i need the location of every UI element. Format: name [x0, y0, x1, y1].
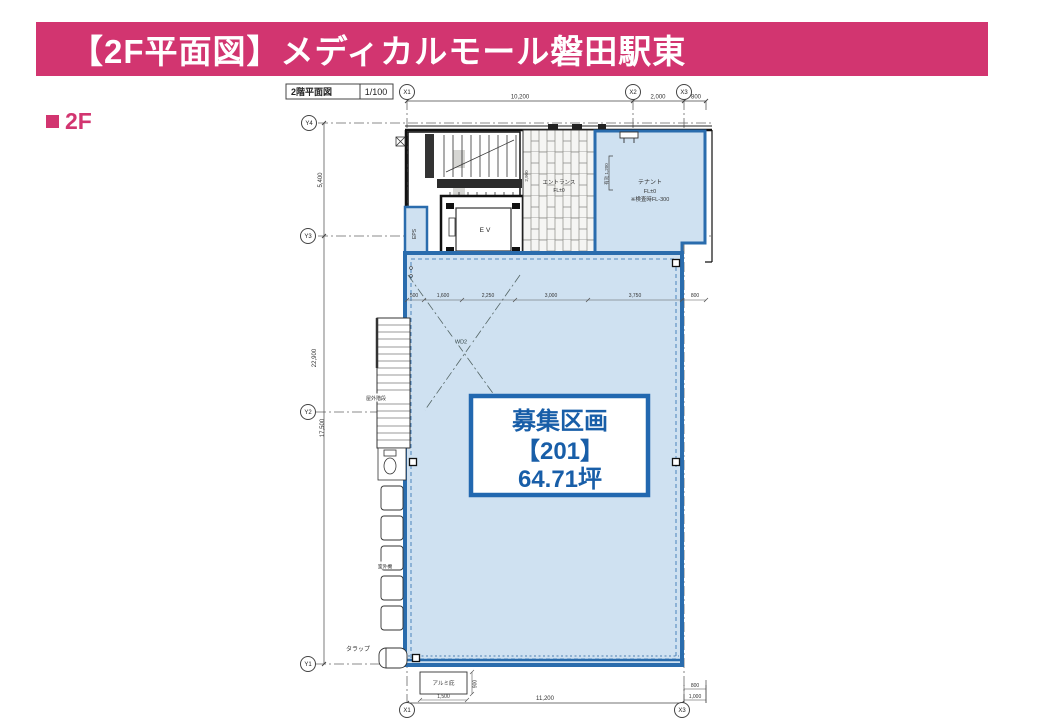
ladder-label: タラップ	[346, 645, 370, 653]
tenant-upper-area: 有効 1,200 テナント FL±0 ※検査時FL-300	[595, 131, 705, 253]
leasing-line3: 64.71坪	[518, 466, 602, 493]
dim-top-span3: 800	[691, 95, 702, 101]
outdoor-staircase	[361, 318, 410, 448]
eps-label: EPS	[412, 228, 418, 239]
square-bullet-icon	[46, 115, 59, 128]
grid-bubble-y3: Y3	[304, 234, 312, 240]
dim-left-lower: 17,500	[320, 418, 326, 437]
tenant-level-label: FL±0	[644, 189, 657, 195]
grid-bubble-x1-bottom: X1	[403, 708, 411, 714]
dim-entrance-depth: 2,900	[524, 170, 529, 182]
title-block: 2階平面図 1/100	[286, 84, 393, 99]
outdoor-stair-label: 屋外階段	[366, 395, 386, 402]
entrance-label: エントランス	[543, 179, 576, 186]
leasing-line2: 【201】	[516, 438, 604, 465]
dim-interior-3: 3,000	[545, 293, 558, 299]
grid-bubble-x2-top: X2	[629, 90, 637, 96]
dim-canopy-depth: 900	[473, 680, 479, 689]
drawing-title: 2階平面図	[291, 86, 332, 97]
dim-left-total: 22,900	[312, 348, 318, 367]
dim-interior-2: 2,250	[482, 293, 495, 299]
grid-bubble-x3-bottom: X3	[678, 708, 686, 714]
dim-tenant-clear: 有効 1,200	[603, 163, 610, 185]
leasing-label-box: 募集区画 【201】 64.71坪	[471, 396, 648, 495]
grid-bubble-x3-top: X3	[680, 90, 688, 96]
dim-bottom-right-b: 1,000	[689, 694, 702, 700]
canopy-label: アルミ庇	[433, 679, 455, 687]
grid-bubble-y4: Y4	[305, 121, 313, 127]
grid-bubble-x1-top: X1	[403, 90, 411, 96]
dim-interior-0: 500	[410, 293, 419, 299]
floor-badge-label: 2F	[65, 108, 92, 135]
drawing-scale: 1/100	[365, 87, 388, 97]
hatch-symbol	[396, 137, 405, 146]
floor-badge: 2F	[46, 108, 92, 135]
toilet-fixture	[378, 448, 406, 480]
outdoor-units	[373, 486, 403, 630]
dim-top-span1: 10,200	[511, 95, 530, 101]
elevator-label: EV	[480, 227, 493, 234]
page-title: 【2F平面図】メディカルモール磐田駅東	[36, 25, 686, 73]
dim-top-span2: 2,000	[650, 95, 666, 101]
dim-interior-5: 800	[691, 293, 700, 299]
grid-bubble-y2: Y2	[304, 410, 312, 416]
door-tag-label: WD2	[455, 340, 467, 346]
elevator-room: EV	[441, 196, 523, 257]
dimension-left	[322, 121, 326, 666]
entrance-area: エントランス FL±0 2,900	[523, 130, 595, 257]
dim-bottom-right-a: 800	[691, 683, 700, 689]
ladder-fixture	[379, 648, 407, 668]
dim-interior-1: 1,600	[437, 293, 450, 299]
outdoor-unit-label: 室外機	[378, 563, 393, 570]
tenant-note-label: ※検査時FL-300	[631, 195, 670, 203]
page-header: 【2F平面図】メディカルモール磐田駅東	[36, 22, 988, 76]
leasing-line1: 募集区画	[511, 407, 608, 435]
dim-canopy-width: 1,500	[437, 694, 450, 700]
dim-interior-4: 3,750	[629, 293, 642, 299]
floor-plan-drawing: 2階平面図 1/100 10,200 2,000 800 5,400 22,90…	[280, 78, 970, 718]
grid-bubble-y1: Y1	[304, 662, 312, 668]
dim-bottom-total: 11,200	[536, 696, 555, 702]
canopy: アルミ庇	[420, 672, 467, 694]
eps-shaft: EPS	[405, 207, 427, 257]
dim-left-upper: 5,400	[318, 172, 324, 188]
tenant-label: テナント	[638, 179, 662, 186]
entrance-level-label: FL±0	[553, 188, 565, 194]
